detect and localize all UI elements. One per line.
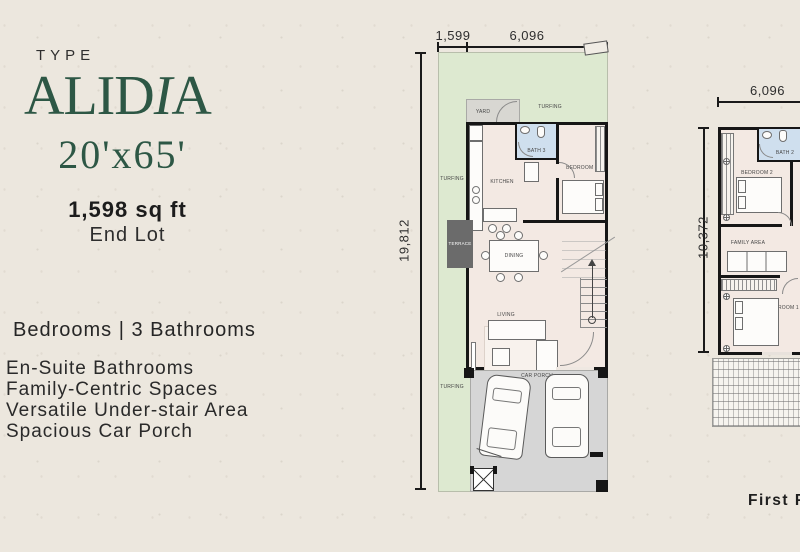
chair-symbol [481, 251, 490, 260]
car-windshield [492, 387, 522, 403]
toilet-symbol [779, 130, 787, 142]
wardrobe-symbol [721, 279, 777, 291]
wall-segment [718, 275, 780, 278]
room-label-yard: YARD [468, 109, 498, 115]
room-label-bath2: BATH 2 [770, 150, 800, 156]
arrow-up-icon [588, 259, 596, 266]
dim-tick [415, 52, 426, 54]
pillow-symbol [738, 196, 746, 209]
ff-dim-width: 6,096 [735, 83, 800, 98]
feature-item: En-Suite Bathrooms [6, 358, 249, 379]
roof-hatch [712, 358, 800, 427]
pillow-symbol [738, 180, 746, 193]
gf-dim-width-left: 1,599 [428, 28, 478, 43]
plan-name-part: ALID [24, 65, 154, 127]
column-symbol [598, 368, 608, 378]
car-windshield [552, 387, 581, 400]
car-roof [552, 427, 581, 447]
column-symbol [464, 368, 474, 378]
room-label-turfing-bottom: TURFING [438, 384, 466, 390]
ff-dim-height: 10,372 [696, 208, 711, 268]
chair-symbol [496, 273, 505, 282]
gf-dim-width-right: 6,096 [492, 28, 562, 43]
plan-dimensions: 20'x65' [30, 131, 215, 178]
dim-tick [466, 42, 468, 52]
knob-symbol [723, 214, 730, 221]
gate-symbol [473, 468, 494, 491]
kitchen-island [483, 208, 517, 222]
plan-name-part: A [171, 65, 210, 127]
room-label-terrace: TERRACE [447, 241, 473, 246]
coffee-table-symbol [492, 348, 510, 366]
dim-tick [437, 42, 439, 52]
room-label-living: LIVING [488, 312, 524, 318]
dim-tick [717, 97, 719, 107]
column-symbol [596, 480, 608, 492]
wall-segment [718, 224, 782, 227]
type-label: TYPE [36, 47, 95, 64]
feature-item: Family-Centric Spaces [6, 379, 249, 400]
fridge-symbol [469, 125, 483, 141]
car-symbol [545, 374, 589, 458]
plan-name: ALIDIA [24, 68, 211, 124]
wardrobe-symbol [721, 133, 734, 215]
gf-dim-height: 19,812 [397, 211, 412, 271]
chair-symbol [539, 251, 548, 260]
pillow-symbol [735, 301, 743, 314]
floor-caption: First Fl [748, 492, 800, 510]
wall-segment [523, 220, 608, 223]
stove-burner-symbol [472, 196, 480, 204]
gf-dim-line-top [438, 46, 608, 48]
ff-dim-line-top [718, 101, 800, 103]
dim-tick [698, 351, 709, 353]
pillow-symbol [735, 317, 743, 330]
stairs-arrow-line [592, 266, 593, 318]
gf-dim-line-left [420, 52, 422, 490]
wall-segment [556, 178, 559, 223]
knob-symbol [723, 345, 730, 352]
basin-symbol [524, 162, 539, 182]
stairs-start-symbol [588, 316, 596, 324]
gate-post [470, 466, 474, 474]
chair-symbol [496, 231, 505, 240]
pillow-symbol [595, 183, 603, 196]
pillow-symbol [595, 198, 603, 211]
sofa-symbol [488, 320, 546, 340]
room-label-turfing-left: TURFING [438, 176, 466, 182]
rooms-summary: Bedrooms | 3 Bathrooms [13, 319, 256, 342]
window-gap [762, 352, 792, 355]
knob-symbol [723, 293, 730, 300]
sofa-symbol [727, 251, 787, 272]
toilet-symbol [537, 126, 545, 138]
knob-symbol [723, 158, 730, 165]
room-label-turfing-top: TURFING [520, 104, 580, 110]
lot-type: End Lot [35, 224, 220, 247]
plan-name-italic: I [154, 65, 172, 127]
dim-tick [698, 127, 709, 129]
sink-symbol [762, 131, 772, 139]
stool-symbol [488, 224, 497, 233]
feature-item: Versatile Under-stair Area [6, 400, 249, 421]
room-label-dining: DINING [489, 253, 539, 259]
wall-segment [556, 122, 559, 164]
room-label-kitchen: KITCHEN [484, 179, 520, 185]
gate-post [493, 466, 497, 474]
car-roof [487, 427, 518, 450]
feature-list: En-Suite Bathrooms Family-Centric Spaces… [6, 358, 249, 442]
stove-burner-symbol [472, 186, 480, 194]
column-symbol [590, 452, 603, 457]
chair-symbol [514, 273, 523, 282]
wall-segment [790, 162, 793, 226]
dim-tick [415, 488, 426, 490]
chair-symbol [514, 231, 523, 240]
plan-area: 1,598 sq ft [35, 197, 220, 223]
brochure-page: TYPE ALIDIA 20'x65' 1,598 sq ft End Lot … [0, 0, 800, 552]
room-label-family: FAMILY AREA [726, 240, 770, 246]
room-label-bedroom2: BEDROOM 2 [736, 170, 778, 176]
sink-symbol [520, 126, 530, 134]
wardrobe-symbol [595, 126, 605, 172]
feature-item: Spacious Car Porch [6, 421, 249, 442]
